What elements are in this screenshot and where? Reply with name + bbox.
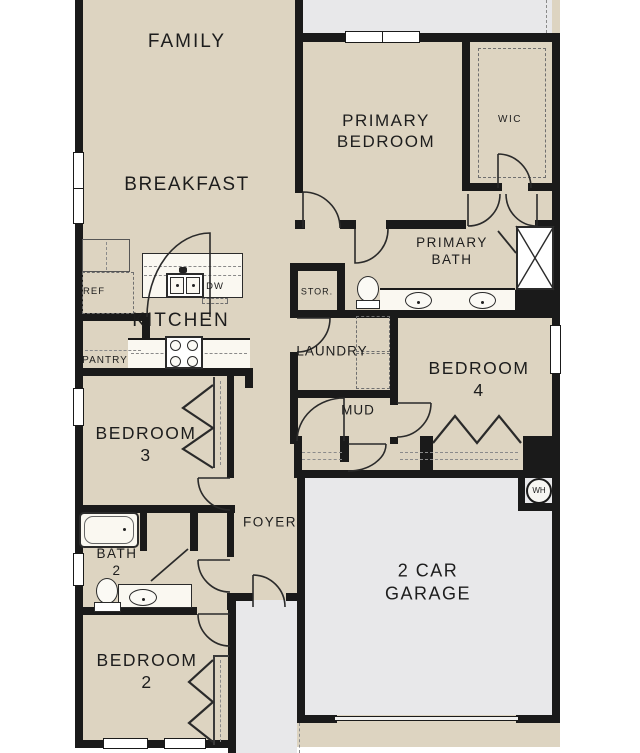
room-label-breakfast: BREAKFAST — [124, 173, 249, 197]
wall — [290, 390, 393, 398]
room-label-garage: 2 CAR GARAGE — [385, 560, 471, 605]
sink-drain — [192, 284, 195, 287]
driveway-dashed-line — [299, 723, 300, 753]
faucet-icon — [179, 267, 187, 273]
toilet-tank — [356, 300, 380, 309]
wall — [462, 38, 470, 191]
window — [382, 31, 420, 43]
sink-drain — [481, 301, 484, 304]
window — [73, 188, 84, 224]
tub-drain — [123, 528, 126, 531]
wall — [286, 593, 302, 601]
toilet — [96, 578, 118, 604]
closet-line — [213, 377, 215, 468]
room-label-kitchen: KITCHEN — [132, 309, 229, 333]
window — [103, 738, 148, 749]
toilet — [357, 276, 379, 302]
room-label-family: FAMILY — [148, 30, 226, 54]
wall — [518, 503, 554, 511]
porch-floor — [236, 600, 297, 753]
floor-plan: WH FAMILY BREAKFAST PRIMARY BEDROOM WIC … — [0, 0, 640, 753]
wall — [75, 740, 235, 748]
room-label-primary-bedroom: PRIMARY BEDROOM — [337, 110, 435, 153]
wall — [227, 593, 234, 610]
pantry-shelf-dash — [85, 350, 141, 351]
burner-icon — [187, 356, 198, 367]
wall — [523, 436, 554, 472]
garage-door — [335, 716, 518, 721]
closet-rod-dash — [220, 660, 221, 742]
closet-line — [213, 655, 229, 657]
wall — [190, 507, 198, 551]
room-label-bath2: BATH 2 — [96, 546, 137, 580]
sink-drain — [176, 284, 179, 287]
burner-icon — [170, 340, 181, 351]
wall — [290, 352, 298, 444]
room-label-bedroom4: BEDROOM 4 — [429, 358, 530, 402]
wall — [295, 220, 305, 229]
window — [73, 152, 84, 189]
wall — [528, 183, 554, 191]
wall — [228, 600, 236, 753]
water-heater-label: WH — [532, 486, 545, 496]
fixture-label-ref: REF — [83, 286, 105, 298]
dishwasher-outline — [202, 298, 228, 304]
patio-edge-dashed-line — [546, 0, 547, 33]
wall — [462, 183, 502, 191]
closet-line — [213, 655, 215, 745]
bathtub — [515, 290, 555, 311]
mud-bench-dash — [302, 452, 342, 453]
room-label-mud: MUD — [341, 403, 375, 420]
wall — [420, 436, 433, 474]
patio-floor — [303, 0, 552, 33]
fixture-label-dw: DW — [206, 281, 224, 293]
wall — [290, 310, 555, 318]
room-label-pantry: PANTRY — [82, 355, 128, 368]
cabinet-dash — [106, 242, 107, 270]
room-label-primary-bath: PRIMARY BATH — [416, 235, 488, 269]
room-label-laundry: LAUNDRY — [296, 344, 367, 361]
bathtub-2-inner — [84, 516, 134, 544]
mud-bench-dash — [302, 459, 342, 460]
wall — [227, 375, 234, 478]
wall — [390, 437, 398, 444]
wall — [340, 220, 356, 229]
closet-rod-dash — [220, 381, 221, 465]
wall — [294, 436, 302, 474]
window — [73, 388, 84, 426]
wall — [386, 220, 466, 229]
wall — [227, 510, 234, 557]
shower — [516, 226, 554, 290]
wall — [337, 263, 345, 310]
window — [550, 325, 561, 374]
window — [164, 738, 206, 749]
sink-drain — [142, 598, 145, 601]
window — [345, 31, 383, 43]
wall — [516, 715, 560, 723]
wall — [245, 368, 253, 388]
closet-rod-dash — [400, 452, 518, 453]
room-label-bedroom3: BEDROOM 3 — [96, 423, 197, 467]
wall — [295, 0, 303, 193]
wall — [294, 470, 554, 478]
toilet-tank — [94, 602, 121, 612]
island-counter-dash — [144, 266, 241, 267]
room-label-storage: STOR. — [301, 286, 333, 297]
wall — [295, 33, 558, 42]
burner-icon — [187, 340, 198, 351]
sink-drain — [417, 301, 420, 304]
burner-icon — [170, 356, 181, 367]
room-label-foyer: FOYER — [243, 515, 297, 532]
room-label-bedroom2: BEDROOM 2 — [97, 650, 198, 694]
closet-rod-dash — [400, 459, 518, 460]
room-label-wic: WIC — [498, 114, 522, 127]
wall — [297, 715, 337, 723]
water-heater: WH — [526, 478, 552, 504]
wall — [552, 33, 560, 722]
wall — [140, 507, 147, 551]
window — [73, 553, 84, 586]
